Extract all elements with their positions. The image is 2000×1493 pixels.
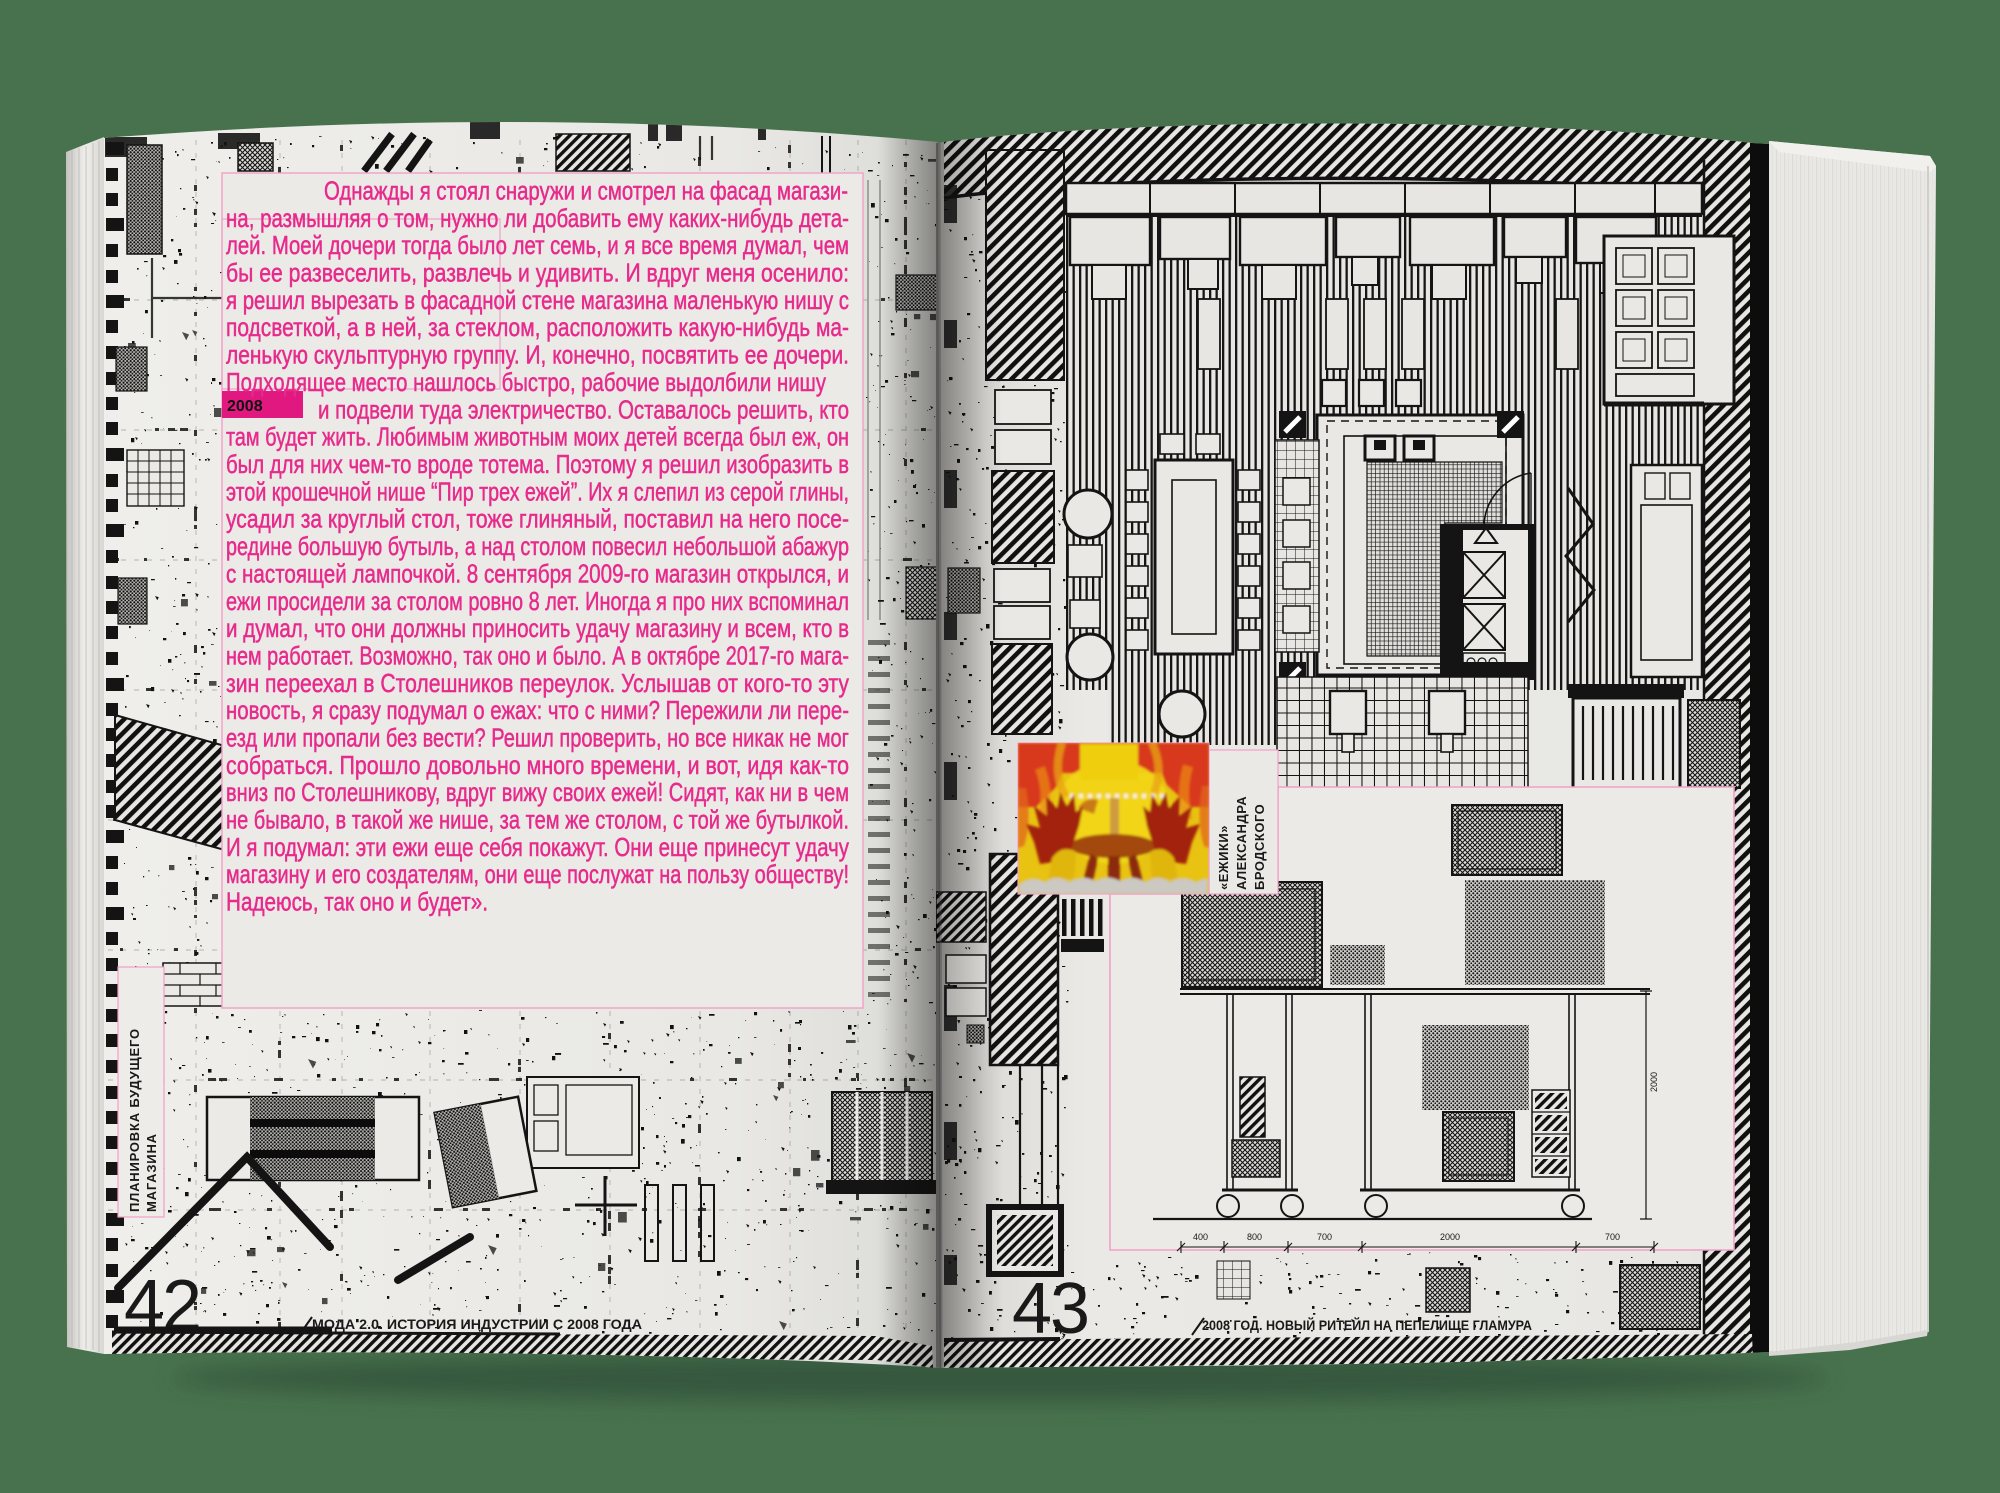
svg-text:«ЕЖИКИ»: «ЕЖИКИ» bbox=[1216, 825, 1231, 890]
svg-text:43: 43 bbox=[1012, 1269, 1088, 1349]
svg-text:этой крошечной нише “Пир трех: этой крошечной нише “Пир трех ежей”. Их … bbox=[226, 476, 849, 506]
svg-text:Однажды я стоял снаружи и смот: Однажды я стоял снаружи и смотрел на фас… bbox=[324, 176, 848, 206]
svg-text:700: 700 bbox=[1605, 1232, 1620, 1242]
svg-text:42: 42 bbox=[124, 1266, 200, 1346]
svg-text:ежи просидели за столом ровно: ежи просидели за столом ровно 8 лет. Ино… bbox=[226, 586, 849, 616]
svg-text:бы ее развеселить, развлечь и: бы ее развеселить, развлечь и удивить. И… bbox=[226, 258, 849, 288]
svg-text:собраться. Прошло довольно мно: собраться. Прошло довольно много времени… bbox=[226, 750, 849, 780]
svg-text:подсветкой, а в ней, за стекло: подсветкой, а в ней, за стеклом, располо… bbox=[226, 312, 849, 342]
svg-text:зин переехал в Столешников пер: зин переехал в Столешников переулок. Усл… bbox=[226, 668, 849, 698]
svg-text:на, размышляя о том, нужно ли: на, размышляя о том, нужно ли добавить е… bbox=[226, 203, 849, 233]
svg-text:не бывало, в такой же нише, за: не бывало, в такой же нише, за тем же ст… bbox=[226, 805, 849, 835]
svg-text:2000: 2000 bbox=[1440, 1232, 1460, 1242]
svg-text:Подходящее место нашлось быстр: Подходящее место нашлось быстро, рабочие… bbox=[226, 367, 826, 397]
svg-text:АЛЕКСАНДРА: АЛЕКСАНДРА bbox=[1234, 796, 1249, 890]
svg-text:и подвели туда электричество.: и подвели туда электричество. Оставалось… bbox=[318, 394, 849, 424]
svg-text:там будет жить. Любимым животн: там будет жить. Любимым животным моих де… bbox=[226, 422, 849, 452]
svg-text:2008: 2008 bbox=[227, 398, 263, 415]
svg-text:800: 800 bbox=[1247, 1232, 1262, 1242]
svg-text:лей. Моей дочери тогда было ле: лей. Моей дочери тогда было лет семь, и … bbox=[226, 230, 849, 260]
svg-text:редине большую бутыль, а над с: редине большую бутыль, а над столом пове… bbox=[226, 531, 849, 561]
svg-text:магазину и его создателям, они: магазину и его создателям, они еще послу… bbox=[226, 859, 849, 889]
svg-text:вниз по Столешникову, вдруг ви: вниз по Столешникову, вдруг вижу своих е… bbox=[226, 777, 849, 807]
svg-text:2000: 2000 bbox=[1649, 1072, 1659, 1092]
svg-text:нем работает. Возможно, так он: нем работает. Возможно, так оно и было. … bbox=[226, 641, 849, 671]
svg-text:новость, я сразу подумал о ежа: новость, я сразу подумал о ежах: что с н… bbox=[226, 695, 849, 725]
svg-text:МАГАЗИНА: МАГАЗИНА bbox=[144, 1133, 159, 1212]
svg-text:БРОДСКОГО: БРОДСКОГО bbox=[1252, 804, 1267, 890]
svg-text:Надеюсь, так оно и будет».: Надеюсь, так оно и будет». bbox=[226, 887, 488, 917]
svg-text:ПЛАНИРОВКА БУДУЩЕГО: ПЛАНИРОВКА БУДУЩЕГО bbox=[127, 1028, 142, 1212]
svg-text:и думал, что они должны принос: и думал, что они должны приносить удачу … bbox=[226, 613, 849, 643]
svg-text:был для них чем-то вроде тотем: был для них чем-то вроде тотема. Поэтому… bbox=[226, 449, 849, 479]
svg-text:ленькую скульптурную группу. И: ленькую скульптурную группу. И, конечно,… bbox=[226, 340, 849, 370]
svg-text:400: 400 bbox=[1193, 1232, 1208, 1242]
svg-text:МОДА 2.0. ИСТОРИЯ ИНДУСТРИИ С: МОДА 2.0. ИСТОРИЯ ИНДУСТРИИ С 2008 ГОДА bbox=[312, 1316, 642, 1332]
svg-text:усадил за круглый стол, тоже г: усадил за круглый стол, тоже глиняный, п… bbox=[226, 504, 849, 534]
svg-text:700: 700 bbox=[1317, 1232, 1332, 1242]
svg-text:2008 ГОД. НОВЫЙ РИТЕЙЛ НА ПЕПЕ: 2008 ГОД. НОВЫЙ РИТЕЙЛ НА ПЕПЕЛИЩЕ ГЛАМУ… bbox=[1202, 1316, 1532, 1333]
svg-text:И я подумал: эти ежи еще себя: И я подумал: эти ежи еще себя покажут. О… bbox=[226, 832, 849, 862]
svg-text:езд или пропали без вести? Реш: езд или пропали без вести? Решил провери… bbox=[226, 723, 849, 753]
svg-text:я решил вырезать в фасадной ст: я решил вырезать в фасадной стене магази… bbox=[226, 285, 849, 315]
svg-text:с настоящей лампочкой. 8 сентя: с настоящей лампочкой. 8 сентября 2009-г… bbox=[226, 558, 849, 588]
